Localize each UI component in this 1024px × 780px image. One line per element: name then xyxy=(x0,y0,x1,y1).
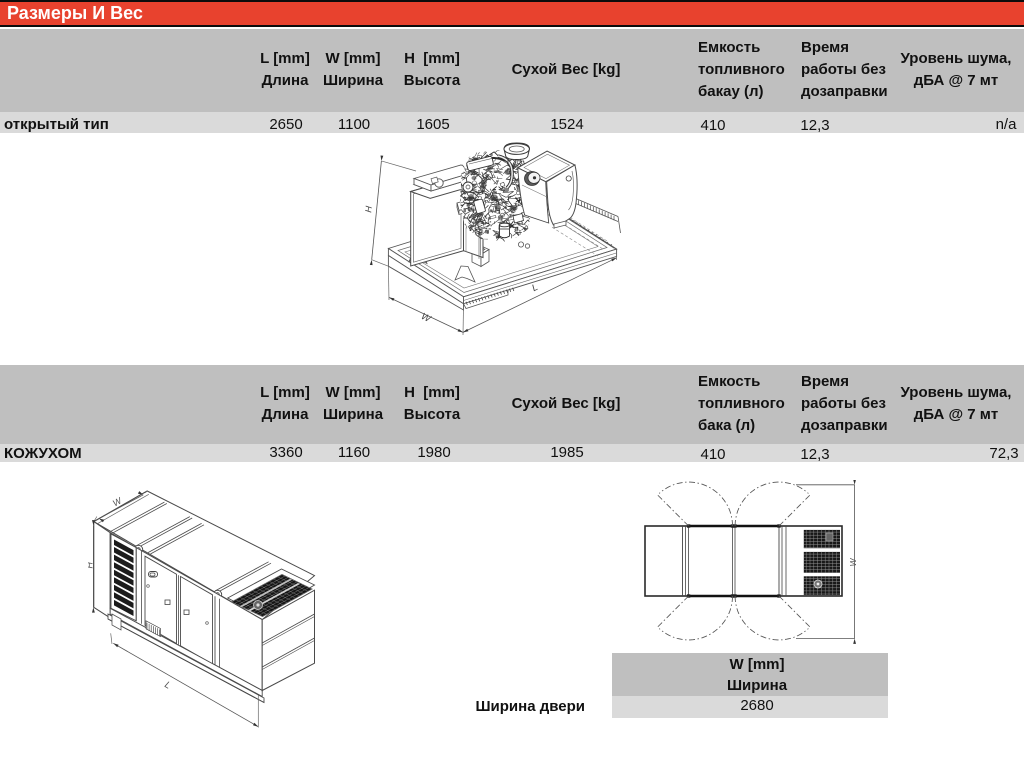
svg-text:H: H xyxy=(363,205,374,213)
svg-text:W: W xyxy=(848,558,858,567)
svg-text:W: W xyxy=(419,311,433,325)
svg-text:L: L xyxy=(530,282,540,294)
svg-text:H: H xyxy=(88,562,95,569)
svg-text:L: L xyxy=(163,679,173,691)
